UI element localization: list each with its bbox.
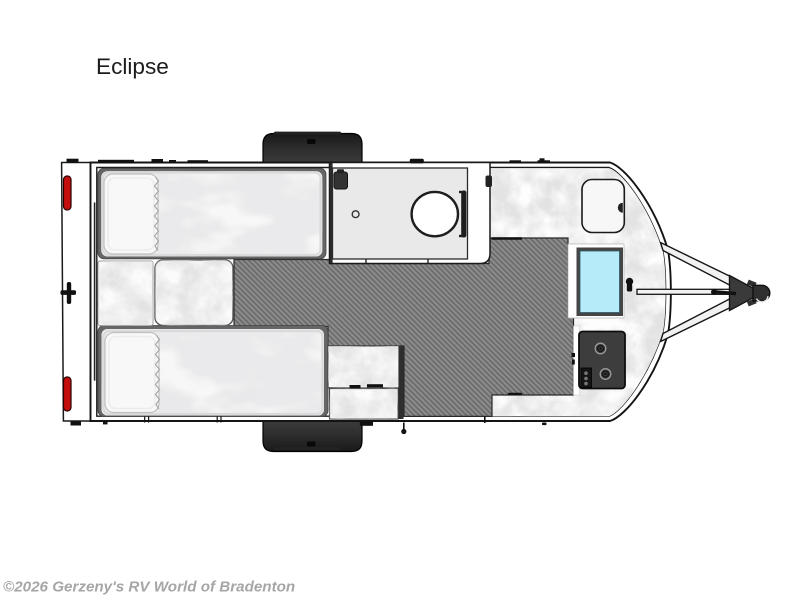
svg-text:©2026 Gerzeny's RV World of Br: ©2026 Gerzeny's RV World of Bradenton [3,579,295,596]
svg-text:Eclipse: Eclipse [96,54,169,79]
